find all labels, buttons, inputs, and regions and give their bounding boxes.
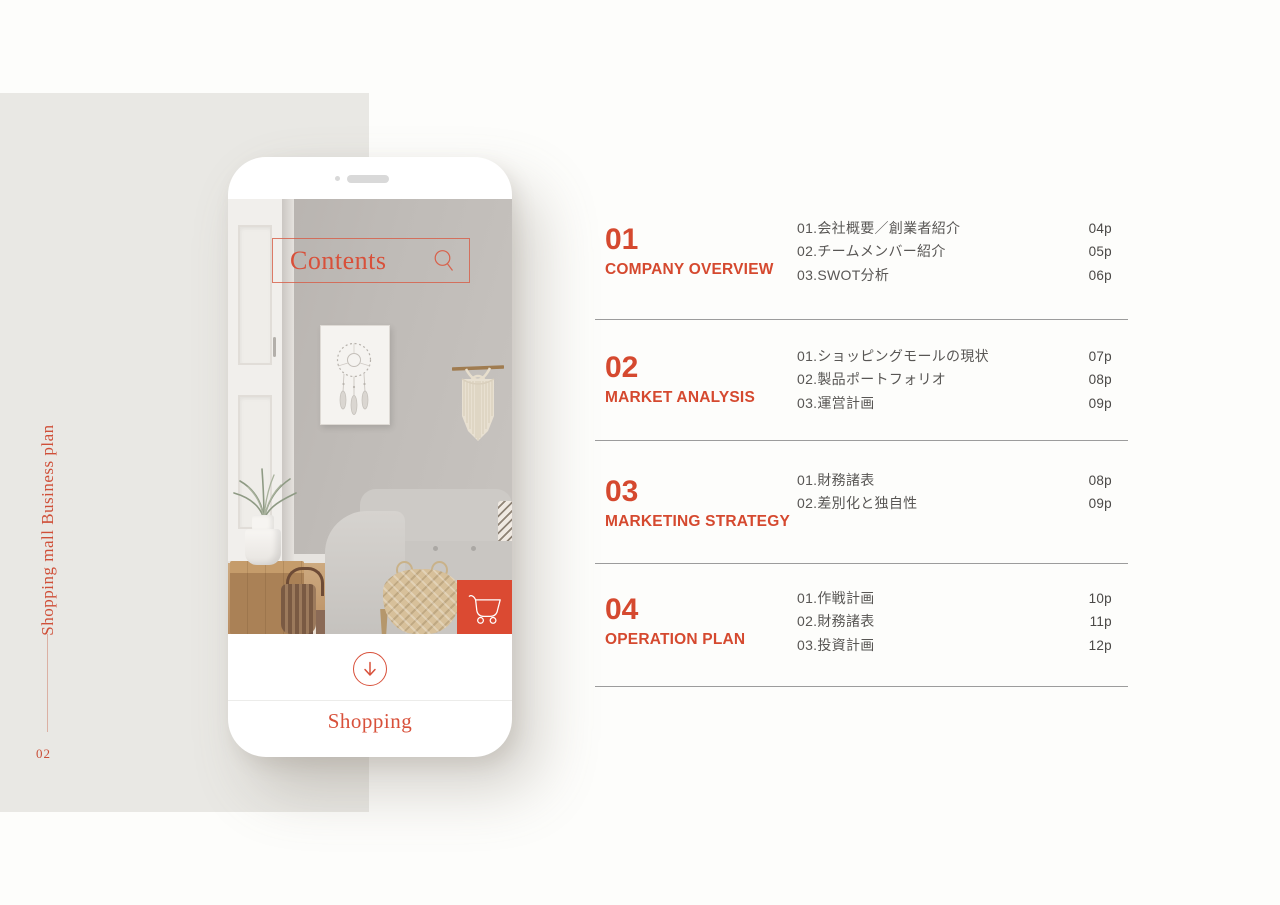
section-title: MARKET ANALYSIS	[605, 389, 797, 407]
section-divider	[595, 686, 1128, 687]
sofa-button	[471, 546, 476, 551]
toc-item-label: 01.ショッピングモールの現状	[797, 346, 989, 366]
section-title: MARKETING STRATEGY	[605, 513, 797, 531]
toc-item-label: 03.運営計画	[797, 393, 875, 413]
slide-page-number: 02	[36, 746, 51, 762]
toc-item-label: 01.作戦計画	[797, 588, 875, 608]
shopping-cart-icon	[467, 590, 503, 624]
toc-item-label: 02.財務諸表	[797, 611, 875, 631]
toc-item-page: 08p	[1089, 372, 1112, 387]
toc-item: 01.会社概要／創業者紹介 04p	[797, 218, 1112, 241]
sidebar-divider-line	[47, 634, 48, 732]
white-vase	[245, 529, 281, 565]
toc-item: 02.差別化と独自性 09p	[797, 493, 1112, 516]
section-divider	[595, 440, 1128, 441]
section-title: OPERATION PLAN	[605, 631, 797, 649]
phone-footer-divider	[228, 700, 512, 701]
toc-item-page: 07p	[1089, 349, 1112, 364]
toc-item-label: 02.差別化と独自性	[797, 493, 917, 513]
toc-item-page: 09p	[1089, 496, 1112, 511]
toc-item-label: 01.会社概要／創業者紹介	[797, 218, 960, 238]
belly-basket	[383, 569, 460, 634]
toc-item: 01.ショッピングモールの現状 07p	[797, 346, 1112, 369]
search-icon	[433, 249, 456, 272]
toc-section-03: 03 MARKETING STRATEGY 01.財務諸表 08p 02.差別化…	[605, 470, 1128, 531]
toc-item: 03.SWOT分析 06p	[797, 265, 1112, 288]
door-handle	[273, 337, 276, 357]
toc-item: 02.製品ポートフォリオ 08p	[797, 369, 1112, 392]
vertical-deck-title: Shopping mall Business plan	[38, 424, 58, 635]
arrow-down-icon	[359, 658, 381, 680]
toc-item: 01.作戦計画 10p	[797, 588, 1112, 611]
section-number: 04	[605, 595, 797, 625]
toc-item: 02.チームメンバー紹介 05p	[797, 241, 1112, 264]
toc-item-label: 01.財務諸表	[797, 470, 875, 490]
toc-item-page: 05p	[1089, 244, 1112, 259]
table-of-contents: 01 COMPANY OVERVIEW 01.会社概要／創業者紹介 04p 02…	[605, 0, 1128, 905]
toc-item: 02.財務諸表 11p	[797, 611, 1112, 634]
macrame-wall-hanging	[452, 361, 504, 463]
phone-screen: Contents	[228, 199, 512, 634]
section-number: 03	[605, 477, 797, 507]
toc-item: 03.運営計画 09p	[797, 393, 1112, 416]
sofa-button	[433, 546, 438, 551]
dreamcatcher-icon	[321, 326, 387, 422]
toc-item-label: 03.SWOT分析	[797, 265, 889, 285]
toc-item-page: 12p	[1089, 638, 1112, 653]
search-bar[interactable]: Contents	[272, 238, 470, 283]
section-divider	[595, 319, 1128, 320]
phone-footer-label: Shopping	[228, 709, 512, 734]
toc-item-label: 02.チームメンバー紹介	[797, 241, 946, 261]
toc-item: 01.財務諸表 08p	[797, 470, 1112, 493]
cart-button[interactable]	[457, 580, 512, 634]
section-number: 01	[605, 225, 797, 255]
phone-mockup: Contents Shopping	[228, 157, 512, 757]
scroll-down-button[interactable]	[353, 652, 387, 686]
toc-item-page: 04p	[1089, 221, 1112, 236]
toc-section-02: 02 MARKET ANALYSIS 01.ショッピングモールの現状 07p 0…	[605, 346, 1128, 416]
small-woven-basket	[281, 584, 316, 634]
plant-leaves	[228, 445, 302, 521]
toc-item: 03.投資計画 12p	[797, 635, 1112, 658]
search-bar-label: Contents	[290, 246, 386, 276]
toc-item-label: 03.投資計画	[797, 635, 875, 655]
toc-item-page: 06p	[1089, 268, 1112, 283]
section-title: COMPANY OVERVIEW	[605, 261, 797, 279]
toc-item-page: 08p	[1089, 473, 1112, 488]
toc-item-page: 09p	[1089, 396, 1112, 411]
section-number: 02	[605, 353, 797, 383]
toc-item-page: 11p	[1090, 614, 1112, 629]
toc-item-page: 10p	[1089, 591, 1112, 606]
section-divider	[595, 563, 1128, 564]
camera-dot-icon	[335, 176, 340, 181]
speaker-bar-icon	[347, 175, 389, 183]
dreamcatcher-picture-frame	[320, 325, 390, 425]
toc-section-01: 01 COMPANY OVERVIEW 01.会社概要／創業者紹介 04p 02…	[605, 218, 1128, 288]
door-panel	[238, 225, 272, 365]
toc-item-label: 02.製品ポートフォリオ	[797, 369, 946, 389]
toc-section-04: 04 OPERATION PLAN 01.作戦計画 10p 02.財務諸表 11…	[605, 588, 1128, 658]
